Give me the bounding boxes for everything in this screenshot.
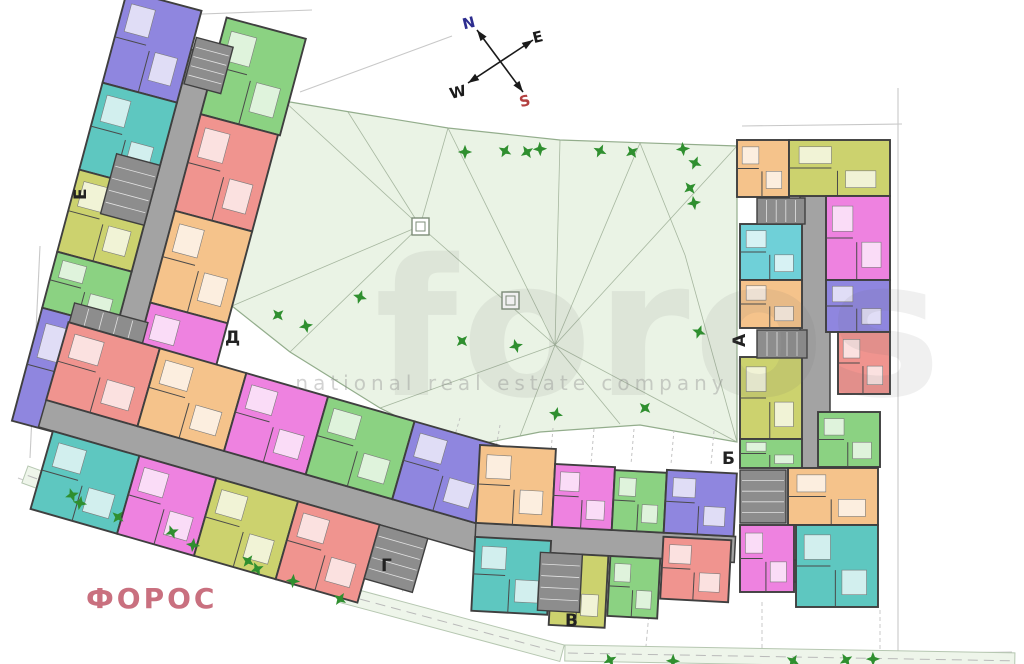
furniture-icon bbox=[853, 442, 872, 459]
furniture-icon bbox=[745, 533, 762, 553]
furniture-icon bbox=[775, 455, 794, 464]
section-label: Г bbox=[381, 556, 392, 576]
watermark-brand: foros bbox=[375, 219, 946, 440]
compass-rose: NEWS bbox=[448, 13, 545, 111]
site-floor-plan: ЕДГВБАNEWS foros national real estate co… bbox=[0, 0, 1024, 664]
furniture-icon bbox=[560, 472, 580, 492]
furniture-icon bbox=[846, 171, 876, 188]
brand-logo: ФОРОС bbox=[86, 582, 217, 615]
furniture-icon bbox=[486, 455, 512, 480]
compass-direction-n: N bbox=[461, 13, 478, 34]
furniture-icon bbox=[669, 545, 692, 565]
furniture-icon bbox=[838, 499, 865, 516]
furniture-icon bbox=[699, 573, 720, 593]
floor-plan-svg: ЕДГВБАNEWS foros national real estate co… bbox=[0, 0, 1024, 664]
furniture-icon bbox=[842, 570, 867, 595]
dimension-line bbox=[742, 124, 902, 126]
furniture-icon bbox=[614, 563, 631, 582]
furniture-icon bbox=[797, 475, 826, 492]
furniture-icon bbox=[742, 147, 759, 164]
compass-direction-w: W bbox=[448, 81, 469, 103]
furniture-icon bbox=[636, 590, 652, 609]
watermark-tagline: national real estate company bbox=[295, 371, 728, 395]
stair-core bbox=[537, 552, 582, 612]
compass-direction-s: S bbox=[517, 91, 532, 111]
wing-v bbox=[471, 445, 740, 634]
furniture-icon bbox=[586, 500, 605, 520]
section-label: Е bbox=[71, 188, 91, 200]
section-label: Б bbox=[722, 449, 735, 469]
dimension-line bbox=[300, 36, 452, 92]
compass-arrowhead bbox=[466, 74, 479, 86]
walkway bbox=[565, 645, 1015, 664]
furniture-icon bbox=[673, 478, 696, 498]
furniture-icon bbox=[703, 506, 725, 526]
section-label: Д bbox=[225, 328, 240, 348]
furniture-icon bbox=[619, 478, 637, 497]
compass-direction-e: E bbox=[531, 27, 545, 47]
furniture-icon bbox=[641, 505, 658, 524]
furniture-icon bbox=[766, 171, 782, 188]
furniture-icon bbox=[481, 546, 506, 569]
furniture-icon bbox=[519, 490, 543, 515]
stair-core bbox=[740, 470, 786, 523]
furniture-icon bbox=[746, 442, 766, 451]
furniture-icon bbox=[514, 580, 538, 603]
section-label: В bbox=[565, 611, 578, 631]
furniture-icon bbox=[804, 535, 830, 560]
furniture-icon bbox=[581, 594, 599, 616]
furniture-icon bbox=[770, 562, 786, 582]
compass-axis bbox=[468, 40, 533, 83]
furniture-icon bbox=[799, 147, 831, 164]
